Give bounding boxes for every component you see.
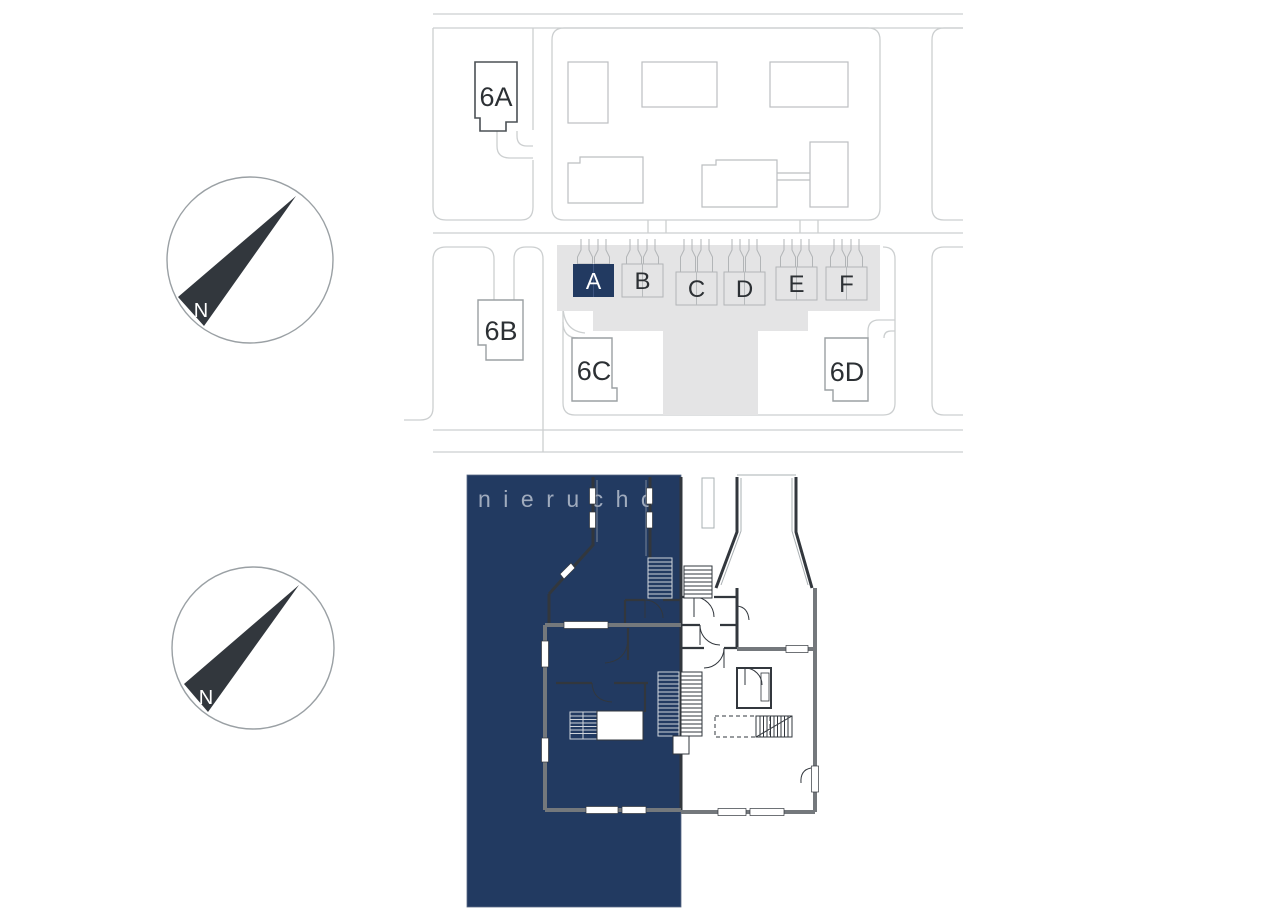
building-6b: 6B xyxy=(478,300,523,360)
unit-box-d[interactable]: D xyxy=(724,272,765,305)
north-label: N xyxy=(199,687,213,709)
building-6b-label: 6B xyxy=(484,316,517,346)
floor-plan: nierucho xyxy=(467,475,819,907)
building-6d-label: 6D xyxy=(830,357,865,387)
unit-box-e[interactable]: E xyxy=(776,267,817,300)
compass-top: N xyxy=(167,177,333,343)
unit-label-a: A xyxy=(586,268,602,294)
unit-label-b: B xyxy=(634,268,650,295)
building-6d: 6D xyxy=(825,338,868,401)
unit-box-c[interactable]: C xyxy=(676,272,717,305)
unit-box-f[interactable]: F xyxy=(826,267,867,300)
building-6c-label: 6C xyxy=(577,356,612,386)
unit-label-d: D xyxy=(736,276,753,303)
building-6a-label: 6A xyxy=(479,82,512,112)
watermark-text: nierucho xyxy=(478,486,666,512)
kitchen-counter xyxy=(597,711,643,740)
bathroom-fixture xyxy=(761,673,769,701)
unit-label-c: C xyxy=(688,276,705,303)
listing-image: A B C D E xyxy=(0,0,1280,917)
north-label: N xyxy=(194,300,208,322)
building-6c: 6C xyxy=(572,338,617,401)
unit-box-a[interactable]: A xyxy=(573,264,614,297)
compass-bottom: N xyxy=(172,567,334,729)
unit-box-b[interactable]: B xyxy=(622,264,663,297)
upper-buildings xyxy=(568,62,848,207)
unit-label-e: E xyxy=(788,271,804,298)
unit-label-f: F xyxy=(839,271,854,298)
thin-lines xyxy=(702,475,808,585)
building-6a: 6A xyxy=(475,62,517,131)
stairs-right-unit xyxy=(673,566,792,754)
site-plan: A B C D E xyxy=(404,14,963,452)
